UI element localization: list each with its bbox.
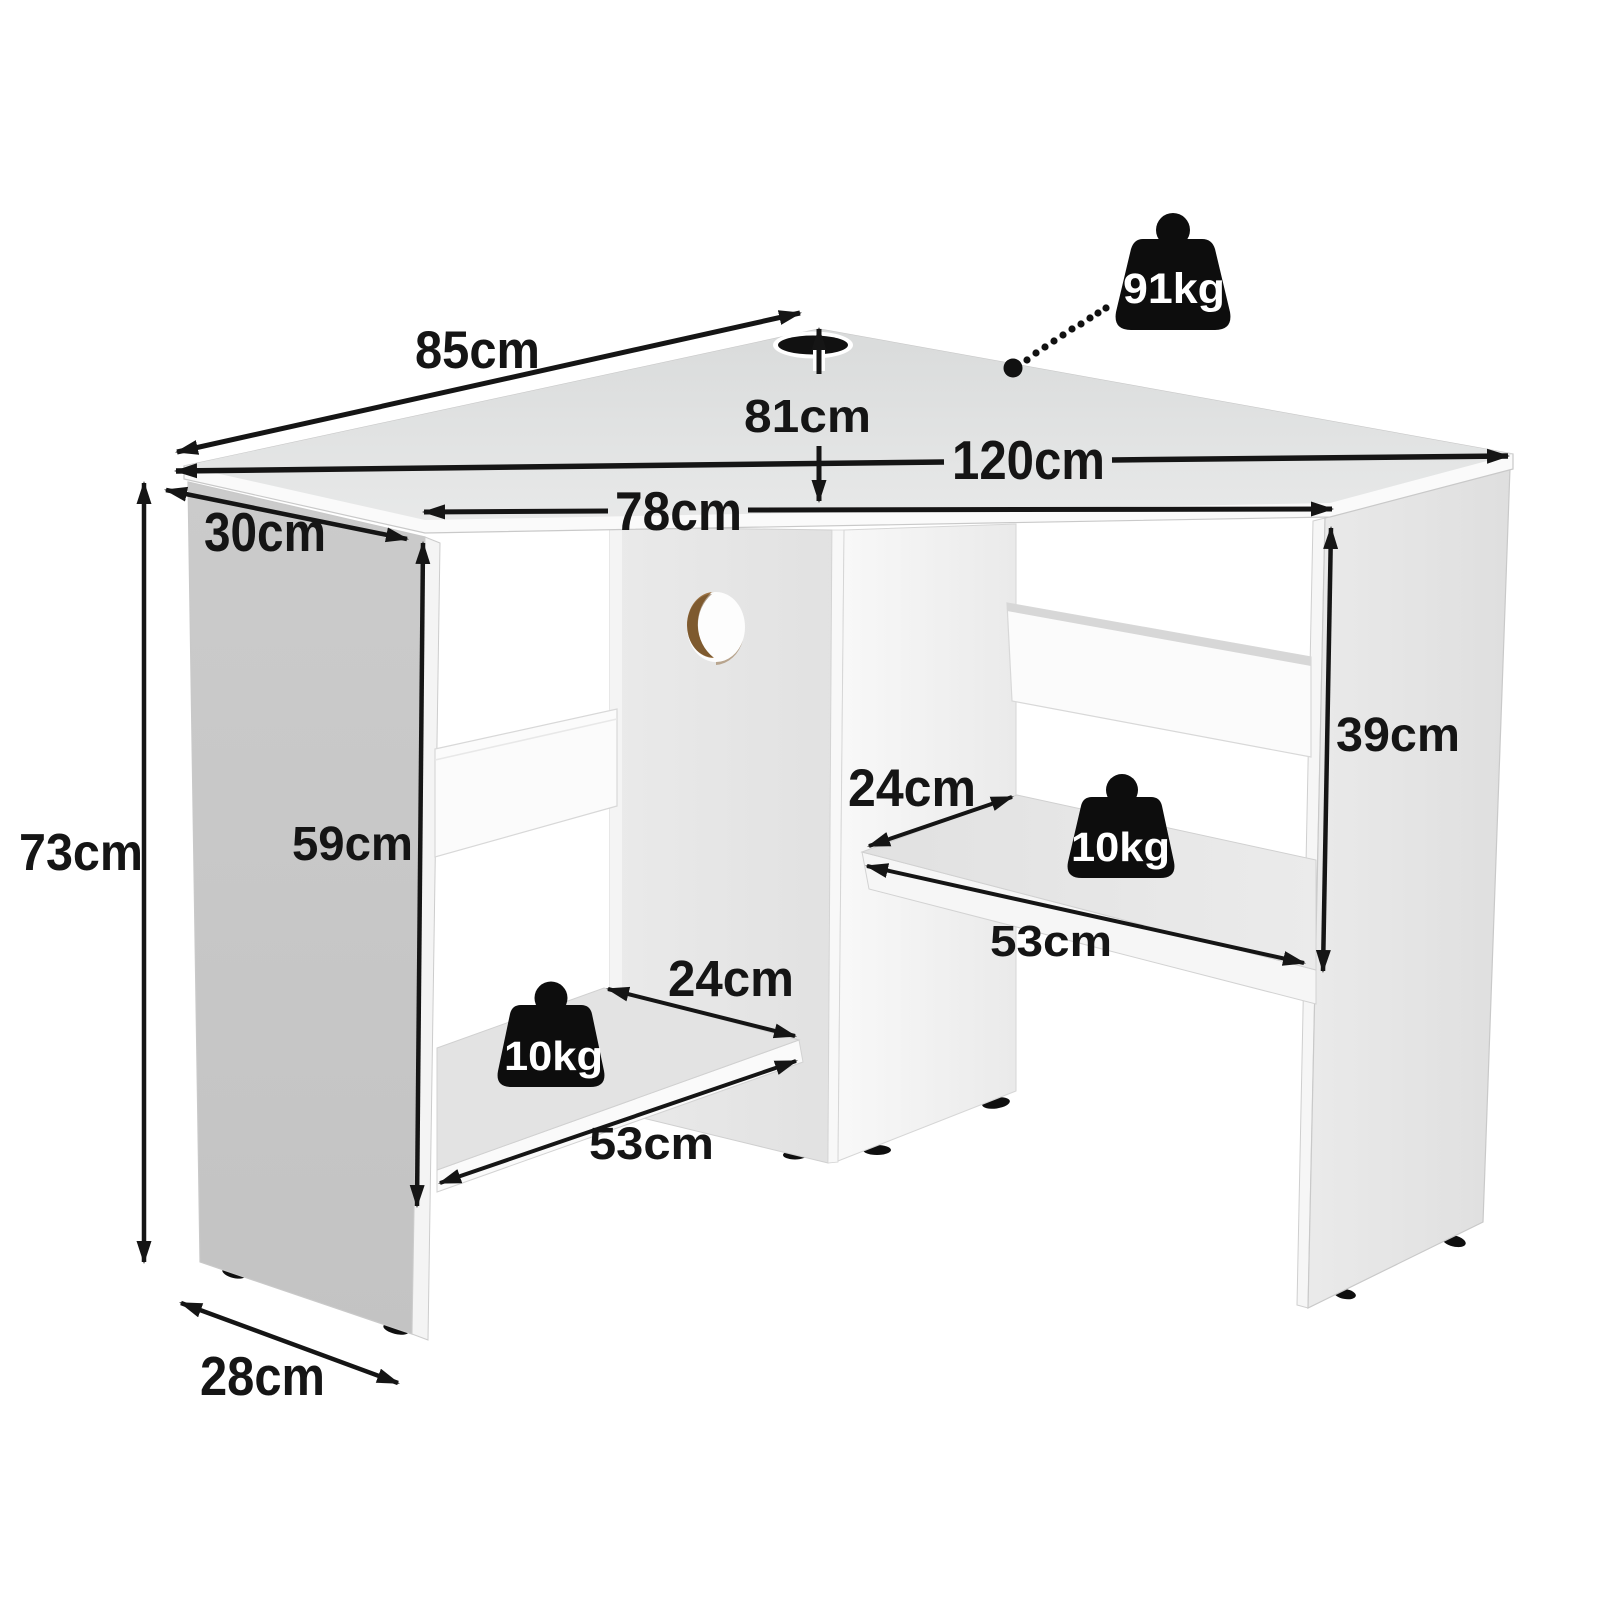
svg-text:78cm: 78cm [615,480,742,542]
svg-text:10kg: 10kg [504,1033,603,1079]
svg-text:59cm: 59cm [292,818,413,871]
svg-text:30cm: 30cm [204,501,326,563]
svg-text:10kg: 10kg [1071,824,1170,870]
svg-text:53cm: 53cm [990,917,1112,966]
svg-text:28cm: 28cm [200,1345,325,1407]
svg-text:85cm: 85cm [415,321,540,380]
svg-text:53cm: 53cm [589,1118,714,1169]
svg-text:24cm: 24cm [848,759,976,818]
svg-text:73cm: 73cm [19,824,143,882]
svg-text:91kg: 91kg [1123,265,1225,313]
svg-text:120cm: 120cm [952,429,1105,491]
svg-text:81cm: 81cm [744,390,871,442]
svg-text:39cm: 39cm [1336,709,1460,762]
svg-text:24cm: 24cm [668,950,794,1007]
